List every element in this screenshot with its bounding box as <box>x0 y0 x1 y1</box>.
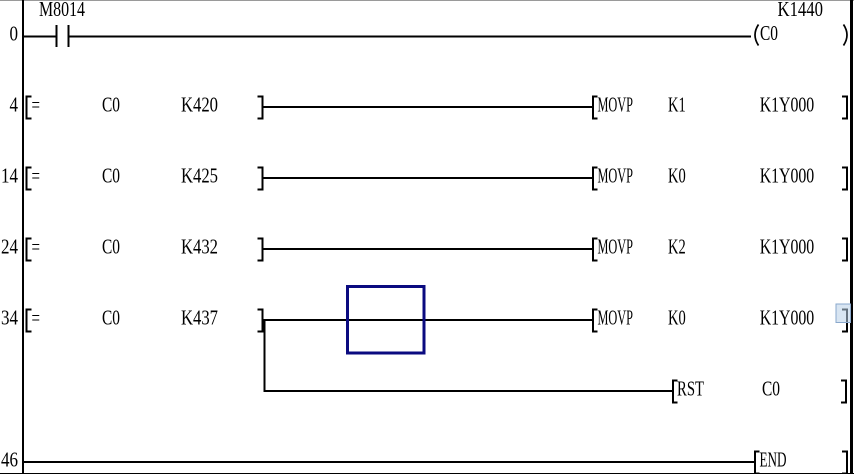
svg-text:K1Y000: K1Y000 <box>760 164 815 188</box>
svg-text:4: 4 <box>10 93 19 117</box>
svg-text:C0: C0 <box>762 377 780 401</box>
svg-text:RST: RST <box>677 377 704 401</box>
svg-text:K432: K432 <box>181 235 218 259</box>
svg-text:K1: K1 <box>668 93 686 117</box>
svg-text:C0: C0 <box>102 164 120 188</box>
svg-text:C0: C0 <box>102 306 120 330</box>
svg-text:46: 46 <box>1 448 18 472</box>
svg-text:0: 0 <box>10 22 19 46</box>
svg-text:K1Y000: K1Y000 <box>760 93 815 117</box>
svg-text:MOVP: MOVP <box>598 164 634 188</box>
svg-text:=: = <box>32 235 41 259</box>
svg-text:24: 24 <box>1 235 18 259</box>
svg-text:C0: C0 <box>102 235 120 259</box>
svg-text:K437: K437 <box>181 306 218 330</box>
svg-text:=: = <box>32 306 41 330</box>
svg-text:M8014: M8014 <box>39 0 85 21</box>
svg-text:END: END <box>760 448 787 472</box>
svg-text:K0: K0 <box>668 164 686 188</box>
svg-text:34: 34 <box>1 306 18 330</box>
svg-text:K2: K2 <box>668 235 686 259</box>
svg-text:K1440: K1440 <box>778 0 824 21</box>
svg-text:K420: K420 <box>181 93 218 117</box>
svg-text:K425: K425 <box>181 164 218 188</box>
svg-text:K1Y000: K1Y000 <box>760 306 815 330</box>
svg-text:=: = <box>32 93 41 117</box>
svg-text:MOVP: MOVP <box>598 235 634 259</box>
svg-text:C0: C0 <box>102 93 120 117</box>
svg-text:=: = <box>32 164 41 188</box>
svg-text:K1Y000: K1Y000 <box>760 235 815 259</box>
svg-text:MOVP: MOVP <box>598 93 634 117</box>
svg-text:14: 14 <box>1 164 18 188</box>
svg-text:C0: C0 <box>760 21 778 45</box>
svg-text:K0: K0 <box>668 306 686 330</box>
svg-text:MOVP: MOVP <box>598 306 634 330</box>
